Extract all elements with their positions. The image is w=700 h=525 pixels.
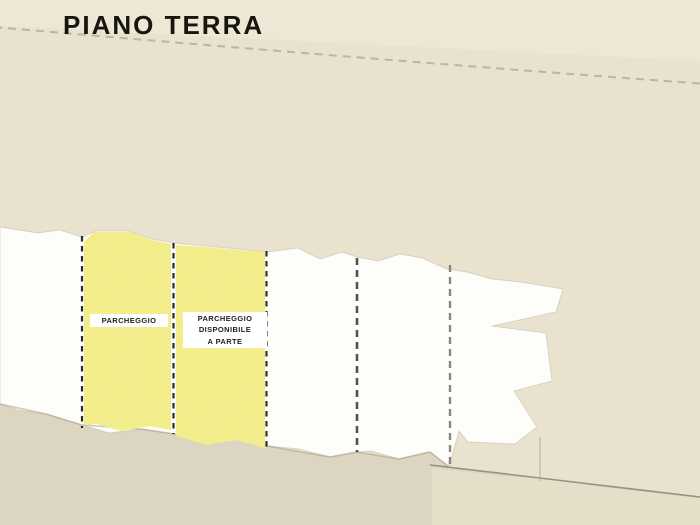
parking-space-label: PARCHEGGIO <box>90 314 168 327</box>
page-title: PIANO TERRA <box>63 10 264 41</box>
highlighted-space-parcheggio <box>84 232 171 431</box>
floor-plan-canvas <box>0 0 700 525</box>
parking-space-label: PARCHEGGIO DISPONIBILE A PARTE <box>183 312 267 348</box>
floor-plan: PIANO TERRA PARCHEGGIO PARCHEGGIO DISPON… <box>0 0 700 525</box>
